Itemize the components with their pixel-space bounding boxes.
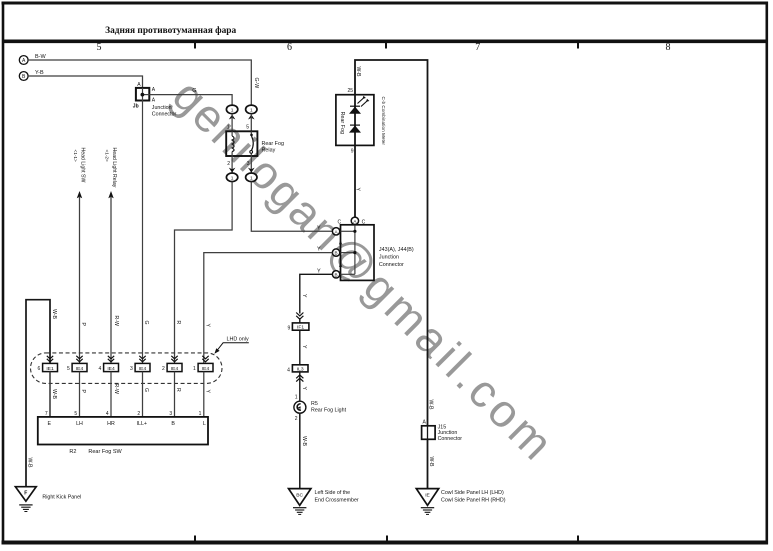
svg-text:R: R — [175, 388, 181, 392]
svg-text:Junction: Junction — [379, 254, 399, 260]
svg-text:IL3: IL3 — [297, 367, 304, 373]
svg-text:2: 2 — [227, 161, 230, 167]
svg-text:LHD only: LHD only — [227, 337, 249, 343]
svg-text:Jb: Jb — [133, 104, 139, 110]
svg-text:A: A — [422, 420, 426, 426]
svg-text:E: E — [48, 421, 52, 427]
svg-text:G: G — [192, 88, 196, 94]
svg-text:7: 7 — [45, 411, 48, 417]
svg-text:BC: BC — [296, 492, 303, 498]
svg-text:1: 1 — [250, 107, 253, 113]
svg-text:LH: LH — [76, 421, 83, 427]
svg-text:HR: HR — [107, 421, 115, 427]
svg-text:Y: Y — [301, 294, 307, 298]
svg-text:Connector: Connector — [438, 436, 463, 442]
svg-text:Connector: Connector — [379, 262, 404, 268]
svg-text:B: B — [335, 272, 338, 277]
svg-text:W-B: W-B — [26, 458, 32, 469]
svg-text:6: 6 — [38, 366, 41, 372]
svg-text:P: P — [80, 390, 86, 394]
svg-text:Y: Y — [355, 188, 361, 192]
svg-text:Rear Fog Light: Rear Fog Light — [311, 408, 347, 414]
svg-text:G: G — [143, 388, 149, 392]
svg-text:Задняя противотуманная фара: Задняя противотуманная фара — [105, 25, 236, 36]
svg-text:Rear Fog: Rear Fog — [262, 141, 284, 147]
svg-text:Relay: Relay — [262, 148, 276, 154]
svg-text:IF1: IF1 — [297, 325, 304, 331]
svg-text:1: 1 — [231, 107, 234, 113]
svg-text:P: P — [80, 323, 86, 327]
svg-text:Y: Y — [317, 225, 321, 231]
svg-text:IE1: IE1 — [46, 366, 54, 372]
svg-text:3: 3 — [130, 366, 133, 372]
svg-text:5: 5 — [97, 42, 102, 53]
svg-text:Y: Y — [301, 387, 307, 391]
svg-text:W-B: W-B — [301, 436, 307, 447]
svg-text:A: A — [152, 87, 156, 93]
svg-text:R5: R5 — [311, 401, 318, 407]
svg-text:C-b Combination Meter: C-b Combination Meter — [381, 97, 386, 146]
svg-text:2: 2 — [162, 366, 165, 372]
svg-text:9: 9 — [351, 149, 354, 155]
svg-text:<1-1>: <1-1> — [73, 150, 78, 163]
svg-text:G: G — [143, 321, 149, 325]
svg-text:1: 1 — [295, 395, 298, 401]
svg-text:End Crossmember: End Crossmember — [315, 497, 359, 503]
svg-text:W-B: W-B — [428, 457, 434, 468]
svg-text:5: 5 — [74, 411, 77, 417]
svg-text:1: 1 — [193, 366, 196, 372]
svg-text:Connector: Connector — [152, 112, 177, 118]
svg-text:IE: IE — [425, 492, 430, 498]
svg-text:5: 5 — [67, 366, 70, 372]
svg-text:L: L — [203, 421, 206, 427]
svg-text:1: 1 — [231, 175, 234, 181]
svg-text:4: 4 — [99, 366, 102, 372]
svg-text:Rear Fog SW: Rear Fog SW — [88, 449, 122, 455]
svg-text:C: C — [337, 219, 341, 225]
svg-text:1: 1 — [199, 411, 202, 417]
svg-text:C: C — [362, 219, 366, 225]
svg-text:W-B: W-B — [51, 389, 57, 400]
svg-text:Cowl Side Panel LH (LHD): Cowl Side Panel LH (LHD) — [441, 490, 504, 496]
svg-text:B: B — [335, 251, 338, 256]
svg-text:IE4: IE4 — [76, 366, 84, 372]
svg-text:1: 1 — [250, 175, 253, 181]
svg-text:IE4: IE4 — [171, 366, 179, 372]
svg-text:ILL+: ILL+ — [137, 421, 147, 427]
svg-text:25: 25 — [347, 88, 353, 94]
svg-text:A: A — [137, 82, 141, 88]
svg-text:Y: Y — [205, 324, 211, 328]
svg-text:9: 9 — [288, 326, 291, 332]
svg-text:IE4: IE4 — [202, 366, 210, 372]
svg-text:J43(A), J44(B): J43(A), J44(B) — [379, 247, 414, 253]
svg-text:4: 4 — [106, 411, 109, 417]
svg-text:5: 5 — [246, 125, 249, 131]
svg-text:B-W: B-W — [35, 54, 47, 60]
svg-text:3: 3 — [169, 411, 172, 417]
svg-text:B: B — [171, 421, 175, 427]
svg-text:R2: R2 — [69, 449, 76, 455]
svg-text:A: A — [152, 97, 156, 103]
svg-text:Y: Y — [317, 268, 321, 274]
svg-text:R-W: R-W — [113, 384, 119, 394]
svg-text:Y: Y — [204, 390, 210, 394]
svg-text:Y-B: Y-B — [35, 70, 44, 76]
svg-text:Rear Fog: Rear Fog — [339, 112, 345, 134]
svg-text:4: 4 — [287, 367, 290, 373]
svg-text:IE4: IE4 — [139, 366, 147, 372]
svg-text:Y: Y — [301, 345, 307, 349]
svg-text:Head Light Relay: Head Light Relay — [111, 148, 117, 188]
svg-text:3: 3 — [247, 161, 250, 167]
svg-text:W-B: W-B — [51, 309, 57, 320]
svg-text:R-W: R-W — [113, 316, 119, 326]
svg-text:Junction: Junction — [152, 105, 172, 111]
svg-text:Head Light SW: Head Light SW — [80, 148, 86, 183]
svg-text:Left Side of the: Left Side of the — [315, 490, 351, 496]
svg-text:6: 6 — [287, 42, 292, 53]
svg-text:F: F — [24, 491, 27, 497]
svg-text:Right Kick Panel: Right Kick Panel — [42, 494, 81, 500]
svg-text:W-B: W-B — [428, 400, 434, 411]
svg-text:IE4: IE4 — [107, 366, 115, 372]
svg-text:<1-2>: <1-2> — [104, 150, 109, 163]
svg-text:Y: Y — [317, 247, 321, 253]
svg-text:2: 2 — [137, 411, 140, 417]
svg-text:8: 8 — [666, 42, 671, 53]
svg-text:7: 7 — [475, 42, 480, 53]
svg-text:2: 2 — [295, 416, 298, 422]
svg-text:Cowl Side Panel RH (RHD): Cowl Side Panel RH (RHD) — [441, 497, 506, 503]
svg-text:W-B: W-B — [355, 67, 361, 78]
svg-text:G-W: G-W — [253, 78, 259, 89]
svg-text:1: 1 — [227, 125, 230, 131]
svg-text:R: R — [175, 321, 181, 325]
